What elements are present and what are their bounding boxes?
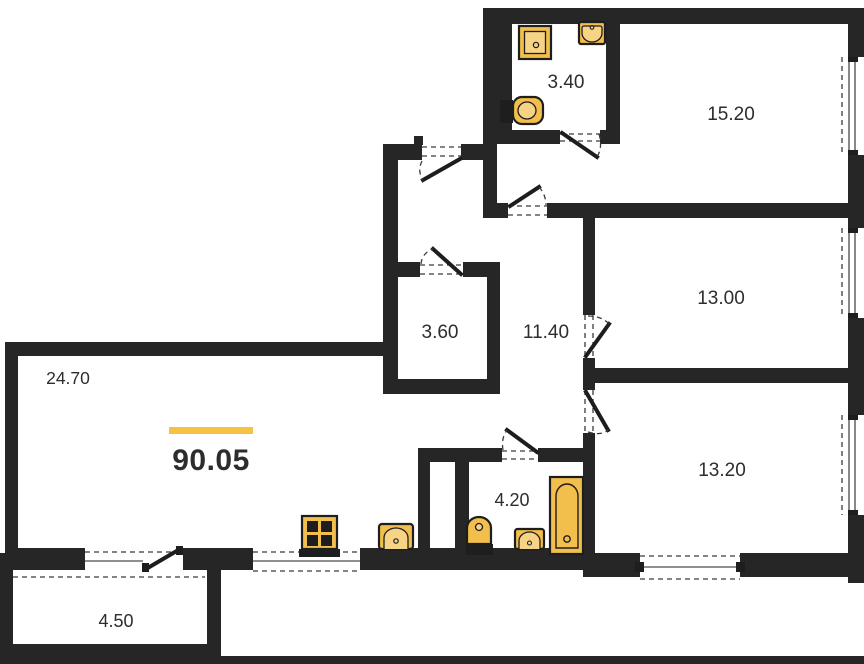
door-bedroom-mid	[585, 315, 609, 358]
stove-icon	[299, 516, 340, 557]
room-area-bathroom-small: 3.40	[548, 72, 585, 93]
room-area-storage: 3.60	[422, 322, 459, 343]
door-storage	[420, 249, 463, 274]
floor-plan-svg: 3.40 15.20 13.00 11.40 3.60 24.70 90.05 …	[0, 0, 864, 664]
window-icon-right-1	[842, 57, 858, 155]
room-area-bedroom-large: 15.20	[707, 104, 755, 125]
bathtub-icon	[550, 477, 583, 554]
sink-icon-bathroom-main	[515, 529, 544, 549]
room-area-bedroom-mid: 13.00	[697, 288, 745, 309]
shower-icon	[519, 26, 551, 59]
room-area-bathroom-main: 4.20	[494, 490, 529, 510]
room-area-living-kitchen: 24.70	[46, 368, 90, 388]
door-balcony	[142, 546, 183, 572]
sink-icon-kitchen	[379, 524, 413, 549]
window-icon-right-2	[842, 228, 858, 318]
room-area-hallway: 11.40	[523, 322, 569, 343]
toilet-icon-bathroom-main	[466, 517, 493, 555]
door-bathroom-small	[560, 133, 601, 157]
room-area-balcony: 4.50	[98, 611, 133, 631]
floor-plan-canvas: 3.40 15.20 13.00 11.40 3.60 24.70 90.05 …	[0, 0, 864, 664]
door-bathroom-main	[502, 430, 538, 459]
window-icon-bedroom-bottom	[635, 556, 745, 579]
door-vestibule	[508, 187, 547, 215]
sink-icon-bathroom-small	[579, 22, 605, 44]
room-area-bedroom-small: 13.20	[698, 460, 746, 481]
door-entry	[420, 147, 461, 180]
window-icon-right-3	[842, 415, 858, 515]
total-area-label: 90.05	[172, 444, 250, 477]
toilet-icon-bathroom-small	[500, 97, 543, 124]
total-area-accent-line	[169, 427, 253, 434]
door-bedroom-small	[585, 390, 608, 434]
